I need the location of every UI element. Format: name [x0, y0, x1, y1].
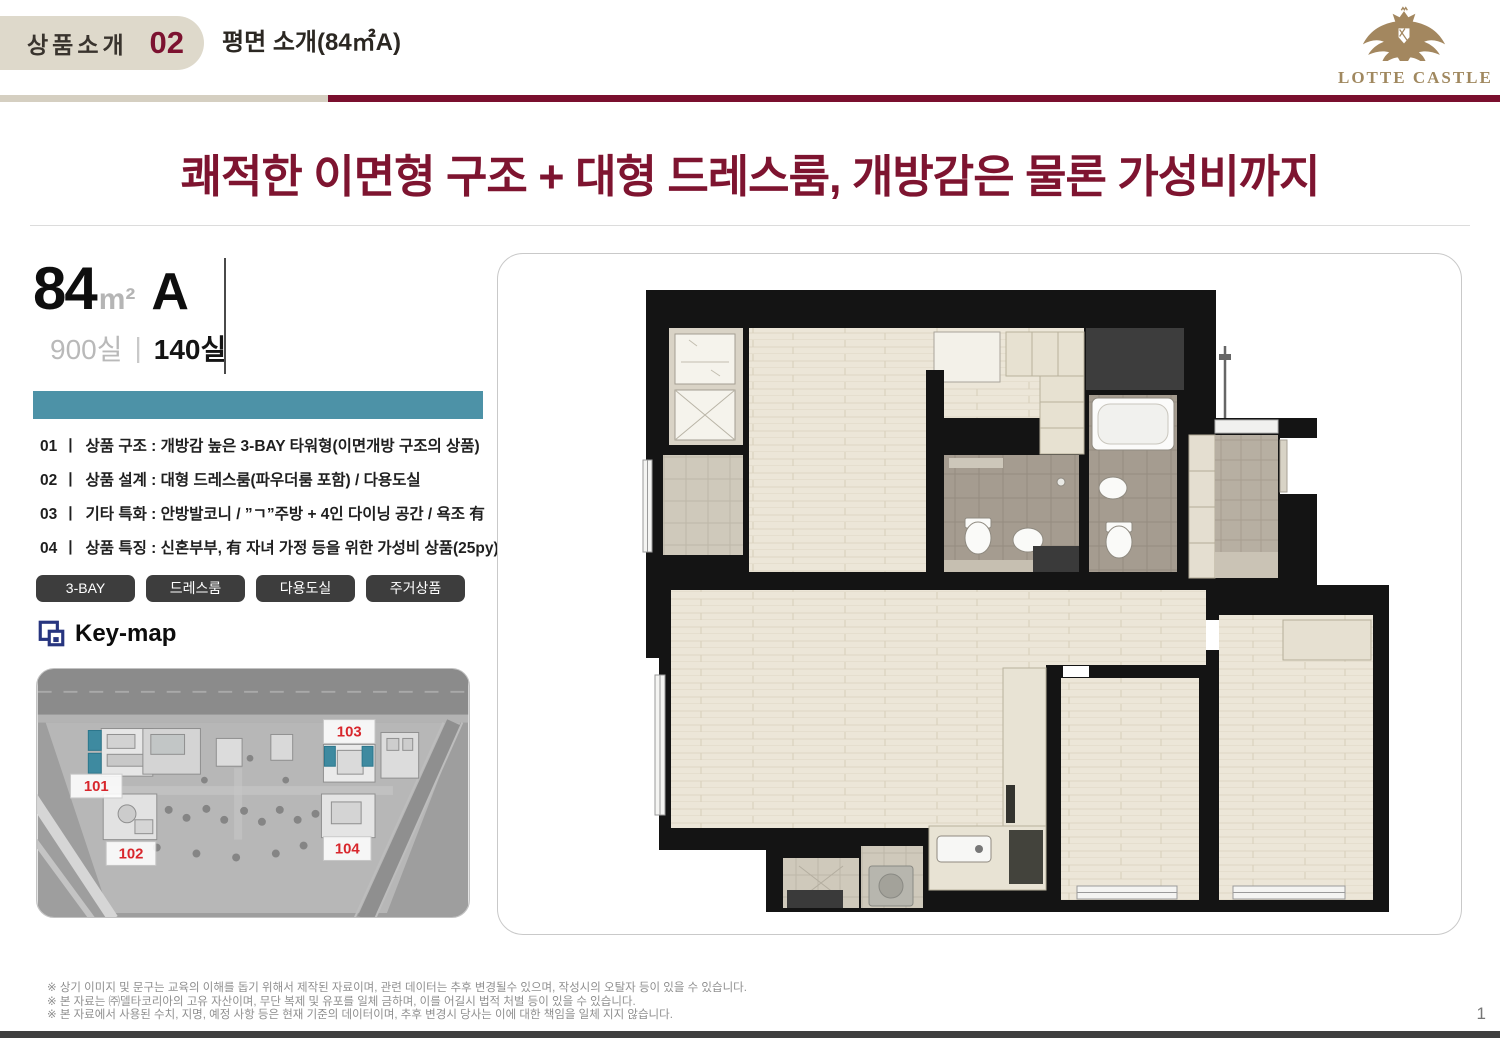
feature-item-1: 01 ㅣ 상품 구조 : 개방감 높은 3-BAY 타워형(이면개방 구조의 상… [40, 434, 499, 456]
building-104-label: 104 [335, 842, 361, 858]
laundry-room [861, 846, 923, 908]
feature-text: 상품 구조 : 개방감 높은 3-BAY 타워형(이면개방 구조의 상품) [86, 434, 480, 456]
header-rule-burgundy [328, 95, 1500, 102]
bottom-bar [0, 1031, 1500, 1038]
keymap-icon [38, 619, 65, 648]
floor-plan [631, 270, 1421, 930]
toilet-icon [965, 522, 991, 554]
lotte-castle-logo: LOTTE CASTLE [1338, 5, 1470, 88]
feature-text: 기타 특화 : 안방발코니 / ”ㄱ”주방 + 4인 다이닝 공간 / 욕조 有 [86, 502, 485, 524]
feature-number: 03 [40, 506, 57, 524]
disclaimer-line-3: ※ 본 자료에서 사용된 수치, 지명, 예정 사항 등은 현재 기준의 데이터… [47, 1009, 747, 1023]
unit-type-heading: 84 m² A [33, 254, 189, 323]
floor-plan-card [497, 253, 1462, 935]
unit-type-letter: A [151, 262, 189, 322]
unit-area-number: 84 [33, 254, 96, 323]
eagle-crest-icon [1344, 5, 1464, 61]
tab-label: 상품소개 [27, 26, 128, 60]
teal-accent-bar [33, 391, 483, 419]
header-rule-beige [0, 95, 328, 102]
feature-separator: ㅣ [63, 468, 77, 490]
type-units: 140실 [154, 328, 226, 368]
logo-text: LOTTE CASTLE [1338, 68, 1470, 88]
unit-area-unit: m² [99, 283, 136, 317]
header-tab-pill: 상품소개 02 [0, 16, 204, 70]
bathroom-common [1089, 395, 1177, 572]
tag-row: 3-BAY 드레스룸 다용도실 주거상품 [36, 575, 465, 602]
header-rule [0, 95, 1500, 102]
elevator-duct-room [1086, 328, 1184, 390]
tag-dressroom: 드레스룸 [146, 575, 245, 602]
building-103-label: 103 [337, 724, 362, 740]
closet-box [1283, 620, 1371, 660]
feature-item-4: 04 ㅣ 상품 특징 : 신혼부부, 有 자녀 가정 등을 위한 가성비 상품(… [40, 536, 499, 558]
tag-3bay: 3-BAY [36, 575, 135, 602]
unit-counts: 900실 | 140실 [50, 328, 226, 368]
disclaimer-line-1: ※ 상기 이미지 및 문구는 교육의 이해를 돕기 위해서 제작된 자료이며, … [47, 982, 747, 996]
feature-list: 01 ㅣ 상품 구조 : 개방감 높은 3-BAY 타워형(이면개방 구조의 상… [40, 434, 499, 570]
feature-separator: ㅣ [63, 536, 77, 558]
building-102-label: 102 [119, 846, 144, 862]
total-units: 900실 [50, 328, 122, 368]
sink-icon [1099, 477, 1127, 499]
bedroom-3 [1206, 615, 1373, 900]
storage-room [669, 328, 743, 445]
building-101-label: 101 [84, 779, 109, 795]
feature-number: 01 [40, 438, 57, 456]
footer-disclaimers: ※ 상기 이미지 및 문구는 교육의 이해를 돕기 위해서 제작된 자료이며, … [47, 982, 747, 1023]
page-number: 1 [1477, 1004, 1486, 1024]
feature-item-2: 02 ㅣ 상품 설계 : 대형 드레스룸(파우더룸 포함) / 다용도실 [40, 468, 499, 490]
bedroom-2 [1061, 666, 1199, 900]
keymap-heading: Key-map [38, 619, 176, 648]
keymap-card: 101 102 103 104 [36, 668, 470, 918]
slide-page: 상품소개 02 평면 소개(84㎡A) LOTTE CASTLE 쾌적한 이면형… [0, 0, 1500, 1038]
tag-utilityroom: 다용도실 [256, 575, 355, 602]
feature-number: 04 [40, 540, 57, 558]
tab-number: 02 [150, 25, 184, 61]
feature-separator: ㅣ [63, 434, 77, 456]
feature-number: 02 [40, 472, 57, 490]
feature-item-3: 03 ㅣ 기타 특화 : 안방발코니 / ”ㄱ”주방 + 4인 다이닝 공간 /… [40, 502, 499, 524]
toilet-icon [1106, 526, 1132, 558]
duct-box-bottom [787, 890, 843, 908]
units-separator: | [134, 332, 141, 364]
exterior-marker [1219, 346, 1231, 418]
headline: 쾌적한 이면형 구조 + 대형 드레스룸, 개방감은 물론 가성비까지 [0, 140, 1500, 205]
duct-box [1033, 546, 1079, 572]
tag-residential: 주거상품 [366, 575, 465, 602]
feature-text: 상품 설계 : 대형 드레스룸(파우더룸 포함) / 다용도실 [86, 468, 421, 490]
page-title: 평면 소개(84㎡A) [222, 16, 401, 70]
disclaimer-line-2: ※ 본 자료는 ㈜델타코리아의 고유 자산이며, 무단 복제 및 유포를 일체 … [47, 996, 747, 1010]
keymap-title: Key-map [75, 620, 176, 648]
feature-text: 상품 특징 : 신혼부부, 有 자녀 가정 등을 위한 가성비 상품(25py) [86, 536, 499, 558]
feature-separator: ㅣ [63, 502, 77, 524]
site-map: 101 102 103 104 [37, 669, 469, 917]
headline-divider [30, 225, 1470, 226]
